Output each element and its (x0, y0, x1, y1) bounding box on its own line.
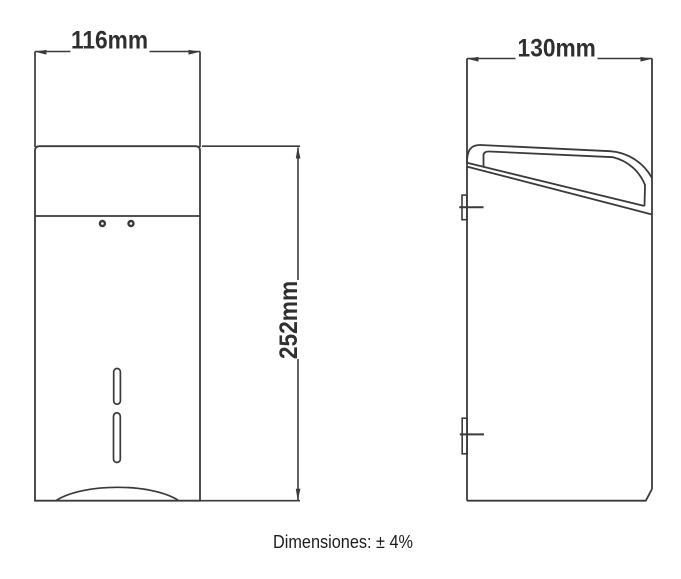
svg-text:130mm: 130mm (518, 36, 596, 63)
svg-text:116mm: 116mm (71, 28, 148, 55)
svg-text:Dimensiones: ± 4%: Dimensiones: ± 4% (273, 531, 413, 552)
svg-text:252mm: 252mm (276, 281, 303, 359)
